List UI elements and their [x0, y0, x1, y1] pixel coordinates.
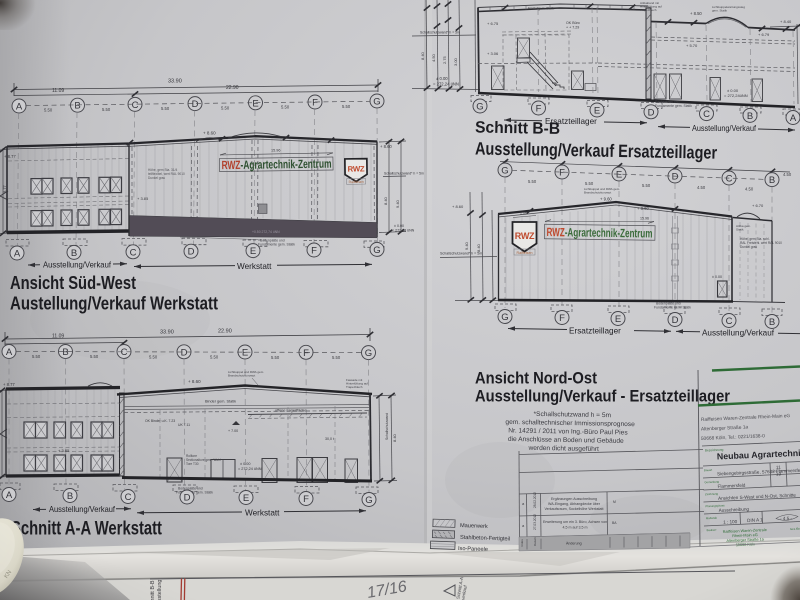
svg-text:A: A: [790, 113, 797, 124]
svg-text:E: E: [250, 246, 256, 257]
svg-text:22.90: 22.90: [226, 85, 239, 91]
svg-text:+ 8.40: + 8.40: [780, 19, 792, 24]
svg-text:15.96: 15.96: [271, 149, 281, 153]
svg-text:5.50: 5.50: [149, 354, 158, 359]
svg-text:E: E: [243, 493, 249, 504]
svg-text:+ 3.85: + 3.85: [58, 448, 70, 453]
svg-text:+ 8.77: + 8.77: [3, 382, 15, 387]
svg-text:Mauerwerk: Mauerwerk: [460, 523, 488, 530]
svg-text:offene Lagerfläche: offene Lagerfläche: [275, 409, 306, 413]
svg-text:B: B: [71, 248, 77, 259]
svg-text:4.50: 4.50: [783, 172, 792, 177]
svg-text:Ausstellung/Verkauf: Ausstellung/Verkauf: [43, 261, 112, 270]
svg-text:B: B: [769, 175, 775, 186]
svg-text:A: A: [6, 347, 13, 358]
svg-text:gem. Statik: gem. Statik: [712, 9, 728, 13]
svg-text:Trapezblech: Trapezblech: [346, 385, 363, 389]
svg-text:A: A: [16, 102, 23, 113]
svg-text:= 272,24 üNN: = 272,24 üNN: [238, 467, 262, 471]
svg-text:G: G: [501, 312, 508, 323]
svg-text:Gez./Bearb.: Gez./Bearb.: [790, 526, 800, 531]
svg-text:8.40: 8.40: [420, 51, 425, 60]
svg-text:Zeichnung: Zeichnung: [705, 492, 719, 497]
svg-text:Erweiterung um ein 3. Büro, Ac: Erweiterung um ein 3. Büro, Achsen von: [543, 520, 607, 524]
svg-text:Schnitt A-A Werkstatt: Schnitt A-A Werkstatt: [11, 519, 163, 540]
svg-text:RWZ: RWZ: [348, 164, 365, 173]
svg-text:Ergänzungen Ausschreibung: Ergänzungen Ausschreibung: [551, 497, 597, 501]
svg-text:D: D: [192, 99, 199, 110]
svg-text:+ 6.79: + 6.79: [758, 32, 770, 37]
svg-text:= 272,24üNN: = 272,24üNN: [724, 93, 748, 98]
svg-text:E: E: [616, 170, 622, 181]
svg-text:Werkstatt: Werkstatt: [245, 508, 280, 517]
svg-text:D: D: [672, 172, 679, 183]
svg-text:UK 7.11: UK 7.11: [178, 423, 190, 427]
svg-text:+ 5.70: + 5.70: [686, 43, 698, 48]
svg-text:19: 19: [776, 471, 782, 476]
svg-text:F: F: [536, 104, 542, 115]
svg-text:Ausstellung/Verkauf: Ausstellung/Verkauf: [702, 329, 775, 338]
svg-text:C: C: [726, 316, 733, 327]
svg-text:G: G: [365, 348, 372, 359]
svg-text:Ansicht Nord-Ost: Ansicht Nord-Ost: [475, 369, 597, 388]
svg-text:5.50: 5.50: [161, 106, 170, 111]
svg-text:2.75: 2.75: [442, 55, 447, 64]
svg-text:Trapezblech: Trapezblech: [640, 8, 657, 12]
svg-text:+ 3.06: + 3.06: [487, 51, 499, 56]
svg-text:Iso-Paneele: Iso-Paneele: [458, 546, 488, 553]
svg-text:5.50: 5.50: [585, 181, 594, 186]
svg-text:+ 6.70: + 6.70: [752, 203, 764, 208]
svg-text:Datum: Datum: [533, 537, 537, 546]
svg-text:± 0.00: ± 0.00: [394, 224, 404, 228]
svg-text:5.50: 5.50: [32, 354, 41, 359]
svg-text:15.96: 15.96: [640, 217, 649, 221]
svg-text:Ausstellung/Verkauf - Ersatzte: Ausstellung/Verkauf - Ersatzteillager: [475, 387, 730, 406]
svg-text:3.00: 3.00: [453, 57, 458, 66]
svg-text:A: A: [6, 490, 13, 501]
svg-text:9.40: 9.40: [395, 199, 400, 208]
svg-text:D: D: [188, 247, 195, 258]
svg-text:4.50: 4.50: [745, 187, 754, 192]
svg-text:E: E: [242, 348, 248, 359]
svg-text:E: E: [615, 314, 621, 325]
svg-text:+ 8.60: + 8.60: [637, 206, 649, 211]
svg-text:+0.50 272,74 üNN: +0.50 272,74 üNN: [252, 230, 280, 234]
svg-text:+ 7.00: + 7.00: [228, 429, 238, 433]
svg-text:+ 8.50: + 8.50: [690, 11, 702, 16]
svg-text:Brandschutzkonzept: Brandschutzkonzept: [228, 374, 255, 378]
svg-text:5.50: 5.50: [210, 355, 219, 360]
svg-text:8.40: 8.40: [392, 433, 397, 442]
svg-text:Schallschutzwand: Schallschutzwand: [385, 413, 389, 440]
svg-text:Schnitt B-B: Schnitt B-B: [475, 119, 560, 138]
svg-text:WA-Eingang, Abhangdecke über: WA-Eingang, Abhangdecke über: [548, 502, 601, 506]
svg-text:Binder gem. Statik: Binder gem. Statik: [205, 400, 236, 404]
svg-text:Raiffeisen: Raiffeisen: [349, 180, 364, 184]
svg-text:B: B: [67, 491, 73, 502]
svg-text:A: A: [14, 249, 21, 260]
svg-text:RWZ-Agrartechnik-Zentrum: RWZ-Agrartechnik-Zentrum: [546, 225, 652, 240]
svg-text:F: F: [559, 313, 565, 324]
svg-text:E: E: [252, 98, 258, 109]
svg-text:5.50: 5.50: [90, 354, 99, 359]
svg-text:*Schallschutzwand h = 5m: *Schallschutzwand h = 5m: [533, 411, 611, 419]
svg-text:D: D: [181, 347, 188, 358]
svg-text:Ansicht Süd-West: Ansicht Süd-West: [10, 273, 136, 293]
svg-text:C: C: [703, 109, 710, 120]
svg-text:11.09: 11.09: [52, 88, 64, 94]
svg-text:Schallschutzwand* h = 5m: Schallschutzwand* h = 5m: [384, 172, 424, 176]
svg-text:11.09: 11.09: [52, 334, 64, 340]
svg-text:= 272,24 üNN: = 272,24 üNN: [392, 229, 415, 233]
svg-text:D: D: [672, 315, 679, 326]
svg-text:Ausstellung/Verkauf: Ausstellung/Verkauf: [692, 124, 757, 133]
svg-text:1 : 100: 1 : 100: [723, 519, 738, 525]
svg-text:4.50: 4.50: [697, 185, 706, 190]
svg-text:Gemarkung: Gemarkung: [704, 480, 719, 485]
svg-text:Maßstab: Maßstab: [706, 516, 717, 520]
svg-text:G: G: [501, 166, 508, 177]
svg-text:30,0 t: 30,0 t: [325, 437, 334, 441]
svg-text:Austellung/Verkauf Werkstatt: Austellung/Verkauf Werkstatt: [10, 293, 218, 314]
svg-text:= 272,24 üNN: = 272,24 üNN: [433, 82, 459, 87]
svg-text:1.06: 1.06: [520, 212, 527, 216]
svg-text:± 0.00: ± 0.00: [240, 462, 251, 466]
svg-text:Ersatzteillager: Ersatzteillager: [569, 326, 621, 335]
svg-text:+ + 7.29: + + 7.29: [566, 26, 579, 30]
svg-text:Fundamente gem. Statik: Fundamente gem. Statik: [655, 104, 692, 108]
svg-text:F: F: [559, 168, 565, 179]
svg-text:Ausstellung: Ausstellung: [157, 580, 163, 600]
svg-text:5.50: 5.50: [642, 183, 651, 188]
svg-text:Dunkel grau: Dunkel grau: [740, 245, 757, 249]
svg-text:8.40: 8.40: [476, 243, 481, 252]
svg-text:+ 8.60: + 8.60: [203, 131, 216, 136]
svg-text:5.50: 5.50: [342, 104, 351, 109]
svg-text:M: M: [613, 500, 616, 504]
svg-text:Verkaufsraum, Sockelhöhe Werks: Verkaufsraum, Sockelhöhe Werkstatt: [544, 507, 603, 511]
svg-text:RWZ: RWZ: [515, 231, 535, 241]
svg-text:Bauherr: Bauherr: [706, 528, 716, 532]
svg-text:+ 8.60: + 8.60: [188, 379, 201, 384]
svg-text:+ 8.60: + 8.60: [380, 144, 392, 149]
svg-text:C: C: [130, 247, 137, 258]
svg-text:5.50: 5.50: [102, 107, 111, 112]
svg-text:C: C: [125, 492, 132, 503]
svg-text:Ausstellung/Verkauf Ersatzteil: Ausstellung/Verkauf Ersatzteillager: [475, 139, 717, 163]
svg-text:9.40: 9.40: [464, 241, 469, 250]
svg-text:Werkstatt: Werkstatt: [237, 262, 272, 271]
svg-text:C: C: [726, 174, 733, 185]
svg-text:5.50: 5.50: [528, 179, 537, 184]
svg-text:Index: Index: [520, 539, 524, 547]
svg-text:+ 8.60: + 8.60: [452, 204, 464, 209]
svg-text:+ 9.60: + 9.60: [600, 197, 612, 202]
svg-text:+ 8.77: + 8.77: [4, 154, 16, 159]
svg-text:F: F: [303, 348, 309, 359]
svg-text:Raiffeisen: Raiffeisen: [517, 251, 533, 255]
svg-text:werden dicht ausgeführt: werden dicht ausgeführt: [527, 445, 599, 453]
svg-text:22.90: 22.90: [218, 329, 232, 335]
svg-text:+ 3.85: + 3.85: [137, 196, 149, 201]
svg-text:Fundamente gem. Statik: Fundamente gem. Statik: [654, 306, 691, 310]
svg-text:Einstallgem. Statik: Einstallgem. Statik: [528, 7, 555, 11]
svg-text:Schallschutzwand* h = 5m: Schallschutzwand* h = 5m: [420, 31, 460, 35]
svg-text:+ 6.75: + 6.75: [487, 21, 499, 26]
svg-text:5.50: 5.50: [281, 105, 290, 110]
svg-text:F: F: [303, 494, 309, 505]
svg-text:B: B: [769, 317, 775, 328]
svg-text:F: F: [312, 98, 318, 109]
svg-text:DIN A 1: DIN A 1: [747, 517, 763, 523]
svg-text:27.03.2012: 27.03.2012: [533, 514, 537, 530]
svg-text:E: E: [594, 106, 600, 117]
svg-text:Schnitt B-B: Schnitt B-B: [150, 580, 156, 600]
svg-text:Tore T30: Tore T30: [186, 462, 199, 466]
svg-text:RWZ-Agrartechnik-Zentrum: RWZ-Agrartechnik-Zentrum: [221, 157, 331, 173]
svg-text:± 0.00: ± 0.00: [712, 275, 722, 279]
svg-text:Dunkel grau: Dunkel grau: [148, 176, 165, 180]
svg-text:D: D: [648, 107, 655, 118]
svg-text:5.50: 5.50: [44, 108, 53, 113]
svg-text:5.50: 5.50: [221, 105, 230, 110]
svg-text:8.40: 8.40: [383, 196, 388, 205]
svg-text:Fundamente gem. Statik: Fundamente gem. Statik: [258, 243, 295, 247]
svg-text:B: B: [747, 111, 753, 122]
svg-text:28.02.2012: 28.02.2012: [533, 492, 537, 508]
svg-text:Ausstellung/Verkauf: Ausstellung/Verkauf: [49, 505, 116, 514]
svg-text:4,5 m auf 3,5 m: 4,5 m auf 3,5 m: [563, 526, 588, 530]
svg-text:33.90: 33.90: [160, 330, 174, 336]
svg-text:Brandschutzkonzept: Brandschutzkonzept: [584, 191, 611, 195]
svg-text:F: F: [311, 246, 317, 257]
svg-text:Statik: Statik: [736, 228, 744, 232]
svg-text:4.50: 4.50: [431, 53, 436, 62]
svg-text:C: C: [121, 347, 128, 358]
svg-text:C: C: [132, 100, 139, 111]
svg-text:G: G: [373, 97, 380, 108]
svg-text:33.90: 33.90: [168, 79, 182, 85]
svg-text:G: G: [476, 102, 483, 113]
svg-text:Änderung: Änderung: [566, 542, 582, 546]
svg-text:5.50: 5.50: [332, 355, 341, 360]
svg-text:B: B: [62, 347, 68, 358]
svg-text:OK Büro: OK Büro: [566, 21, 580, 25]
svg-text:D: D: [184, 493, 191, 504]
svg-text:G: G: [373, 245, 380, 256]
svg-text:5.50: 5.50: [271, 355, 280, 360]
svg-text:± 0.00: ± 0.00: [436, 76, 448, 81]
svg-text:BA: BA: [612, 521, 617, 525]
svg-text:B: B: [74, 101, 80, 112]
svg-text:11: 11: [776, 465, 781, 470]
svg-text:G: G: [365, 495, 372, 506]
svg-text:Bauort: Bauort: [704, 468, 713, 472]
